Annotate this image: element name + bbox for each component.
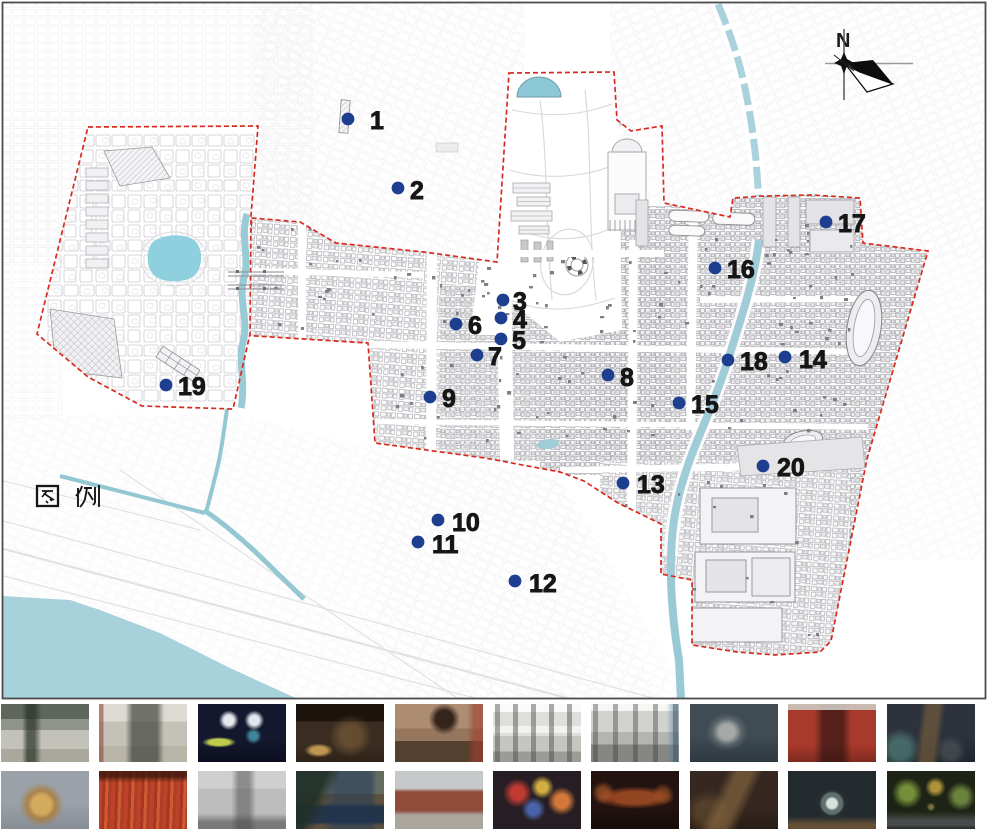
svg-text:14: 14 (799, 346, 827, 374)
svg-text:16: 16 (727, 256, 755, 284)
svg-text:17: 17 (838, 210, 866, 238)
svg-text:20: 20 (777, 454, 805, 482)
svg-text:7: 7 (488, 343, 502, 371)
svg-text:15: 15 (691, 391, 719, 419)
svg-text:12: 12 (529, 570, 557, 598)
svg-text:18: 18 (740, 348, 768, 376)
svg-text:N: N (836, 30, 850, 52)
svg-text:6: 6 (468, 312, 482, 340)
svg-text:2: 2 (410, 177, 424, 205)
svg-text:1: 1 (370, 107, 384, 135)
svg-text:8: 8 (620, 364, 634, 392)
svg-text:5: 5 (512, 327, 526, 355)
svg-text:13: 13 (637, 471, 665, 499)
svg-text:19: 19 (178, 373, 206, 401)
svg-text:9: 9 (442, 385, 456, 413)
svg-text:11: 11 (432, 531, 459, 559)
